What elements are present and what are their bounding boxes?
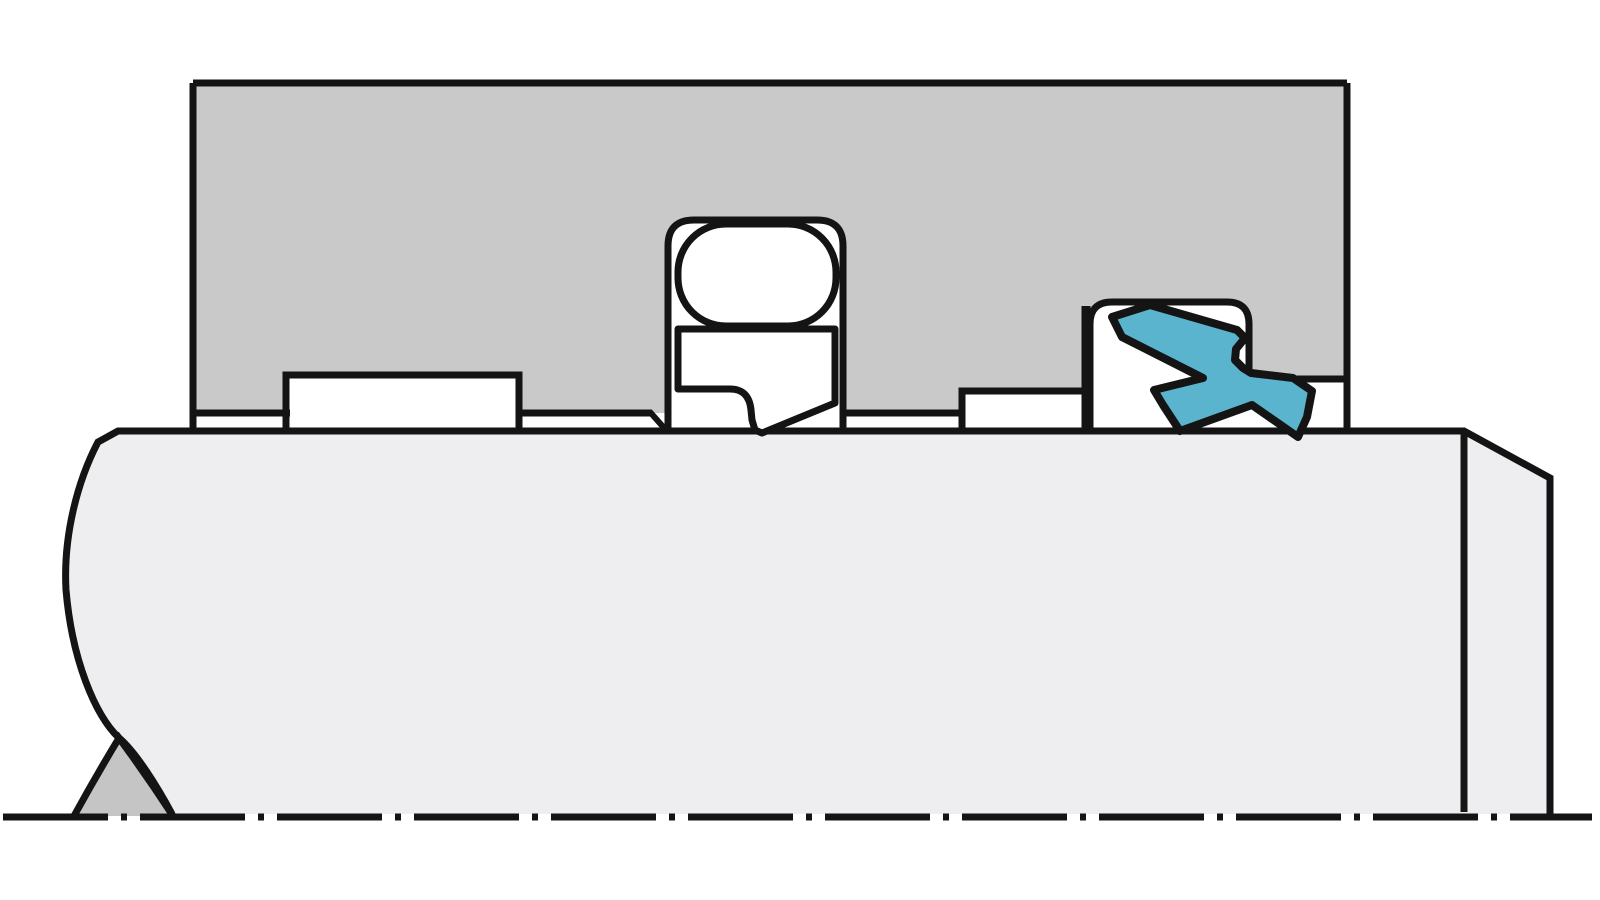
oring-seal	[678, 224, 836, 326]
technical-drawing-stage	[0, 0, 1600, 900]
rod-seal-cross-section-drawing	[0, 0, 1600, 900]
rod-body-fill	[66, 431, 1550, 814]
